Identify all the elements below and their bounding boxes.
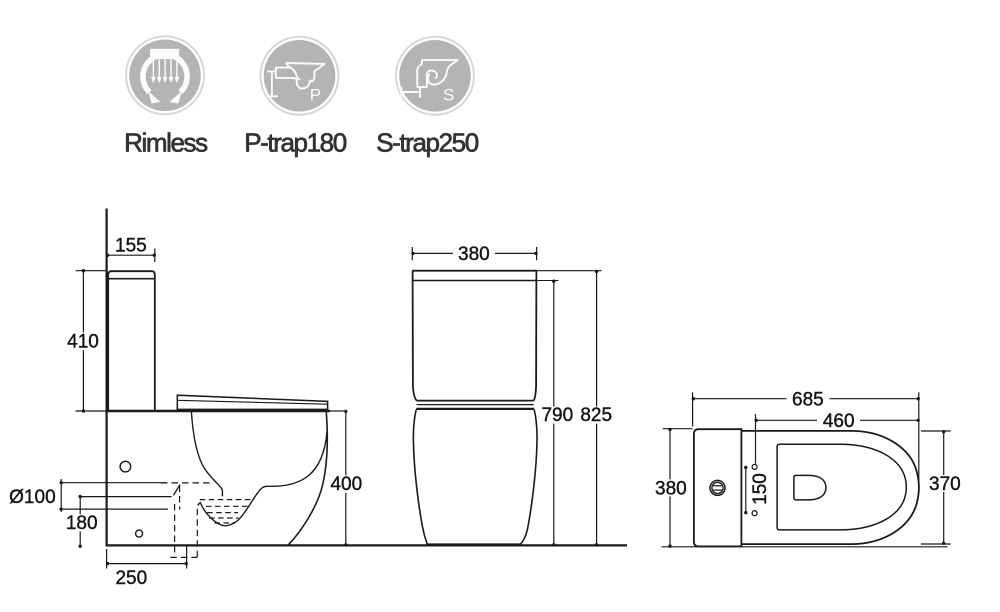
svg-text:P-trap180: P-trap180	[244, 128, 347, 158]
svg-text:370: 370	[929, 474, 961, 495]
svg-text:410: 410	[67, 332, 99, 353]
svg-text:180: 180	[66, 513, 98, 534]
svg-text:155: 155	[115, 236, 147, 257]
svg-text:S: S	[443, 85, 454, 104]
svg-text:S-trap250: S-trap250	[376, 128, 479, 158]
svg-text:790: 790	[541, 405, 573, 426]
svg-text:250: 250	[115, 568, 147, 589]
svg-text:380: 380	[458, 244, 490, 265]
svg-text:825: 825	[580, 405, 612, 426]
svg-text:400: 400	[330, 474, 362, 495]
svg-text:Ø100: Ø100	[9, 487, 55, 508]
svg-text:460: 460	[823, 411, 855, 432]
svg-text:P: P	[310, 85, 321, 104]
svg-text:Rimless: Rimless	[124, 128, 208, 158]
svg-text:150: 150	[750, 473, 771, 505]
svg-text:685: 685	[792, 389, 824, 410]
svg-text:380: 380	[655, 479, 687, 500]
